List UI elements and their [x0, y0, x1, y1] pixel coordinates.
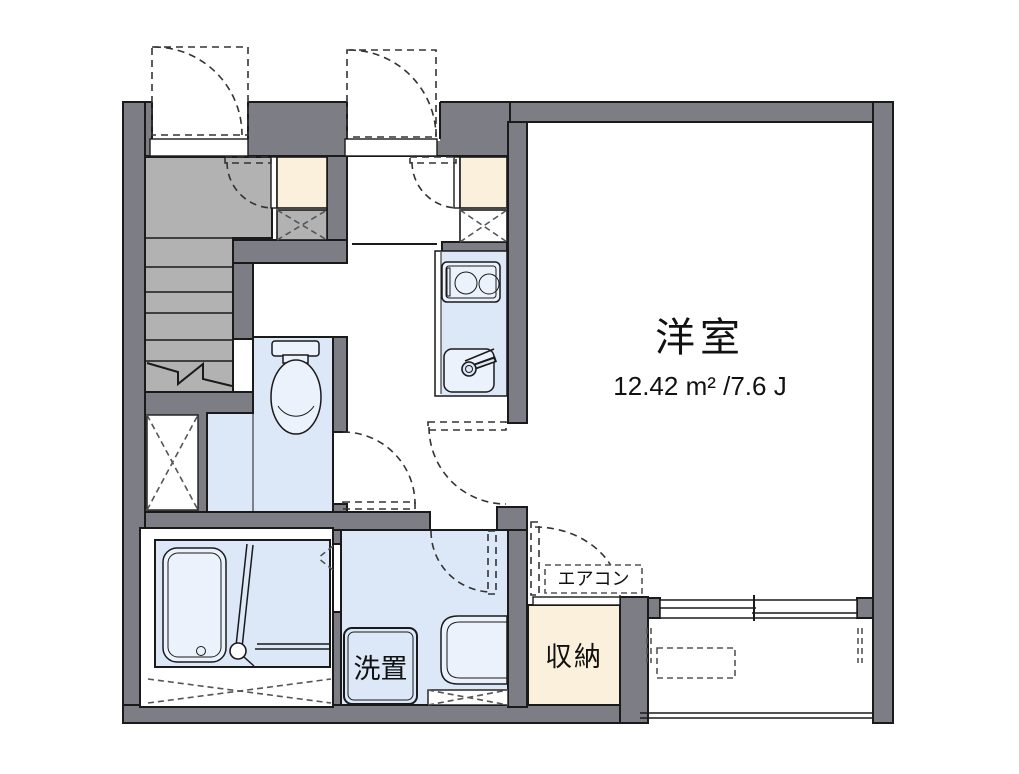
balcony-railing [640, 713, 873, 718]
stove [442, 262, 500, 302]
bath-door-pivot [230, 643, 246, 659]
wall-hall-corner [497, 507, 527, 530]
storage-door-leaf [531, 522, 539, 595]
balcony-window-frame [660, 600, 857, 618]
entrance-opening-2 [347, 101, 440, 141]
balcony-mark-right [858, 628, 862, 663]
wall-storage-right [620, 597, 648, 723]
storage-label: 収納 [528, 604, 620, 704]
closet-face-left [271, 157, 277, 208]
entrance-sill-1 [150, 139, 248, 156]
xbox-right [460, 210, 507, 242]
toilet-bowl [271, 360, 321, 434]
closet-right [460, 157, 507, 208]
toilet-tank [272, 341, 319, 356]
room-door-swing [429, 427, 506, 504]
xbox-left [277, 210, 327, 240]
kitchen-counter-edge [436, 252, 441, 395]
wall-bath-divider-top [333, 530, 341, 544]
closet-left [277, 157, 327, 208]
wall-window-stub-left [648, 598, 660, 618]
balcony-equipment-outline [657, 648, 735, 678]
wall-toilet-right [333, 337, 347, 432]
bathtub [163, 548, 226, 662]
floor-plan: 洋室 12.42 m² /7.6 J エアコン 収納 洗置 [0, 0, 1019, 774]
western-room-label: 洋室 [530, 308, 870, 360]
room-door-leaf [428, 422, 506, 430]
wall-top-room [510, 102, 873, 122]
closet-right-door-leaf [410, 157, 456, 163]
toilet-door-swing [343, 432, 415, 504]
aircon-label: エアコン [544, 563, 643, 593]
laundry-label: 洗置 [343, 627, 418, 705]
wall-room-west-lower [508, 507, 527, 707]
faucet-base [462, 362, 476, 376]
balcony [640, 595, 873, 718]
western-room-door [428, 422, 506, 504]
western-room-area-label: 12.42 m² /7.6 J [530, 370, 870, 402]
washbasin [441, 616, 507, 684]
wall-room-west-upper [508, 122, 527, 423]
bathroom [140, 528, 333, 707]
toilet-door-leaf [343, 502, 415, 509]
wall-right [873, 102, 893, 723]
entrance-sill-2 [345, 139, 437, 156]
kitchen [435, 251, 507, 396]
closet-face-right [454, 157, 460, 208]
wall-mid-vertical [233, 263, 253, 339]
closet-right-door-swing [412, 162, 458, 208]
wall-closet-column [327, 156, 347, 242]
wall-mid-horizontal [233, 240, 347, 263]
wall-bath-divider-bottom [333, 612, 341, 705]
wall-window-stub-right [857, 598, 873, 618]
